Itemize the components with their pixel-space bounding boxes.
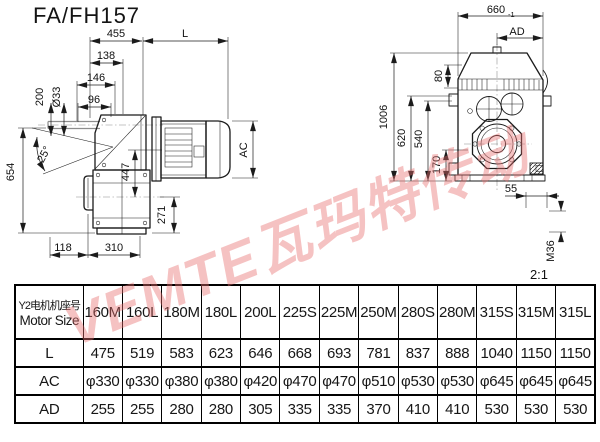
row-label: L [15,339,83,367]
col-header: 200L [241,285,280,339]
cell: 530 [477,395,516,423]
dim-label-80: 80 [433,70,445,82]
cell: φ530 [438,367,477,395]
cell: φ330 [83,367,122,395]
table-row-L: L 475 519 583 623 646 668 693 781 837 88… [15,339,595,367]
col-header: 250M [359,285,398,339]
dim-label-271: 271 [156,206,168,224]
hollow-shaft-cover [84,176,93,210]
col-header: 280M [438,285,477,339]
cell: 888 [438,339,477,367]
dim-label-M36: M36 [545,240,557,261]
dim-label-540: 540 [413,130,425,148]
dim-label-660-tolerance: -1 [508,10,515,19]
cell: 583 [162,339,201,367]
dim-label-AC: AC [238,142,250,157]
col-header: 180L [201,285,240,339]
shaft-end-block [530,163,543,174]
dim-label-310: 310 [105,242,123,254]
dim-label-455: 455 [107,28,125,40]
cell: 781 [359,339,398,367]
table-header-row: Y2电机机座号 Motor Size 160M 160L 180M 180L 2… [15,285,595,339]
cell: φ380 [201,367,240,395]
cell: φ380 [162,367,201,395]
cell: 1040 [477,339,516,367]
dim-label-620: 620 [396,129,408,147]
cell: 668 [280,339,319,367]
table-row-AD: AD 255 255 280 280 305 335 335 370 410 4… [15,395,595,423]
dim-label-AD: AD [509,26,524,38]
row-label: AD [15,395,83,423]
dim-label-138: 138 [97,50,115,62]
dim-label-55: 55 [505,183,517,195]
cell: 335 [319,395,358,423]
motor-size-header-en: Motor Size [16,313,83,328]
cell: 530 [516,395,555,423]
base-plate [455,175,545,181]
cell: φ420 [241,367,280,395]
cell: 519 [122,339,161,367]
dim-label-654: 654 [5,163,17,181]
side-view-dimension-labels: 455 L 138 146 96 200 Ø33 25° 654 447 AC … [5,28,250,254]
cell: φ470 [319,367,358,395]
mounting-lug [449,163,458,175]
cell: 530 [556,395,595,423]
motor-size-header-cn: Y2电机机座号 [16,297,83,313]
col-header: 180M [162,285,201,339]
technical-drawing-canvas: 455 L 138 146 96 200 Ø33 25° 654 447 AC … [0,0,600,283]
cell: φ645 [516,367,555,395]
motor-size-header-cell: Y2电机机座号 Motor Size [15,285,83,339]
col-header: 160M [83,285,122,339]
dim-label-170: 170 [431,156,443,174]
dim-label-660: 660 [487,4,505,16]
cell: 410 [438,395,477,423]
front-view-dimension-labels: 660 -1 AD 80 1006 620 540 170 55 M36 2:1 [378,4,557,282]
cell: 370 [359,395,398,423]
col-header: 225M [319,285,358,339]
col-header: 280S [398,285,437,339]
dim-label-L: L [182,28,188,40]
cell: 646 [241,339,280,367]
cell: 410 [398,395,437,423]
cell: φ645 [477,367,516,395]
detail-scale-note: 2:1 [530,267,548,282]
cell: 1150 [556,339,595,367]
cell: φ645 [556,367,595,395]
cell: 255 [122,395,161,423]
cell: φ470 [280,367,319,395]
cell: 693 [319,339,358,367]
cell: φ510 [359,367,398,395]
cell: φ530 [398,367,437,395]
cell: 623 [201,339,240,367]
col-header: 315M [516,285,555,339]
cell: 305 [241,395,280,423]
col-header: 160L [122,285,161,339]
cell: 255 [83,395,122,423]
dim-label-d33: Ø33 [51,87,63,108]
dim-label-200: 200 [34,88,46,106]
dim-label-118: 118 [54,242,72,254]
row-label: AC [15,367,83,395]
front-view-drawing [449,44,551,190]
gearbox-base [97,228,146,234]
cell: 475 [83,339,122,367]
cell: 335 [280,395,319,423]
dim-label-1006: 1006 [378,105,390,129]
dim-label-96: 96 [88,94,100,106]
mounting-lug [543,96,551,106]
table-row-AC: AC φ330 φ330 φ380 φ380 φ420 φ470 φ470 φ5… [15,367,595,395]
dimension-table: Y2电机机座号 Motor Size 160M 160L 180M 180L 2… [14,284,596,424]
dim-label-146: 146 [87,72,105,84]
drawing-page: FA/FH157 [0,0,600,442]
dim-label-447: 447 [120,163,132,181]
motor [152,117,230,181]
col-header: 315L [556,285,595,339]
cooling-fins [462,79,539,90]
col-header: 225S [280,285,319,339]
cell: φ330 [122,367,161,395]
front-view-dimension-lines [390,12,566,242]
dim-label-25deg: 25° [35,144,53,164]
cell: 837 [398,339,437,367]
cell: 280 [162,395,201,423]
col-header: 315S [477,285,516,339]
cell: 1150 [516,339,555,367]
cell: 280 [201,395,240,423]
side-view-dimension-lines [18,37,258,258]
